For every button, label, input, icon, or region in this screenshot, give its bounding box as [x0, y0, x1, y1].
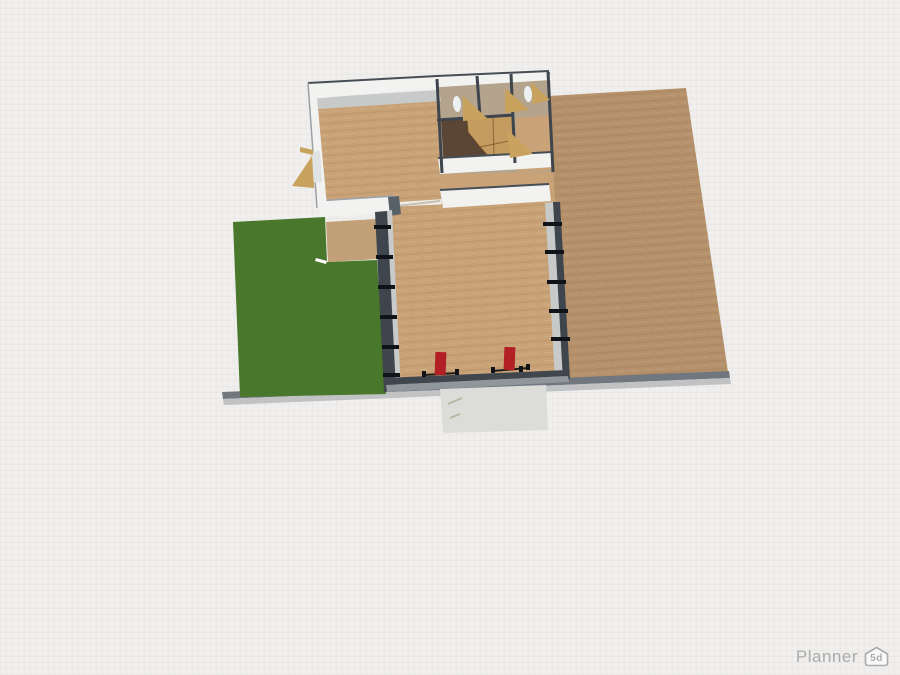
- window-marker[interactable]: [383, 373, 400, 377]
- window-marker[interactable]: [378, 285, 395, 289]
- window-marker[interactable]: [543, 222, 562, 226]
- chair-back: [504, 347, 516, 370]
- chair-foot: [526, 364, 530, 370]
- window-marker[interactable]: [549, 309, 568, 313]
- chair-foot: [519, 366, 523, 372]
- living-room-floor[interactable]: [390, 199, 564, 389]
- patio-slab[interactable]: [440, 385, 548, 433]
- window-marker[interactable]: [551, 337, 570, 341]
- window-marker[interactable]: [547, 280, 566, 284]
- window-frame-tick: [300, 147, 313, 155]
- door-leaf[interactable]: [292, 156, 314, 188]
- planner5d-logo-icon: 5d: [863, 645, 890, 668]
- chair-foot: [455, 369, 459, 375]
- room-floor-upper-left[interactable]: [318, 100, 444, 207]
- window-marker[interactable]: [382, 345, 399, 349]
- badge-5d-text: 5d: [870, 653, 883, 664]
- window-marker[interactable]: [380, 315, 397, 319]
- watermark-brand-text: Planner: [796, 647, 858, 667]
- chair-back: [435, 352, 447, 375]
- chair-foot: [422, 371, 426, 377]
- floorplan-3d-viewport[interactable]: [0, 0, 900, 675]
- window-marker[interactable]: [376, 255, 393, 259]
- window-marker[interactable]: [374, 225, 391, 229]
- chair-foot: [491, 367, 495, 373]
- terrain-ground[interactable]: [548, 88, 728, 382]
- window-marker[interactable]: [545, 250, 564, 254]
- planner5d-watermark: Planner 5d: [796, 645, 890, 668]
- porch-floor[interactable]: [326, 219, 378, 262]
